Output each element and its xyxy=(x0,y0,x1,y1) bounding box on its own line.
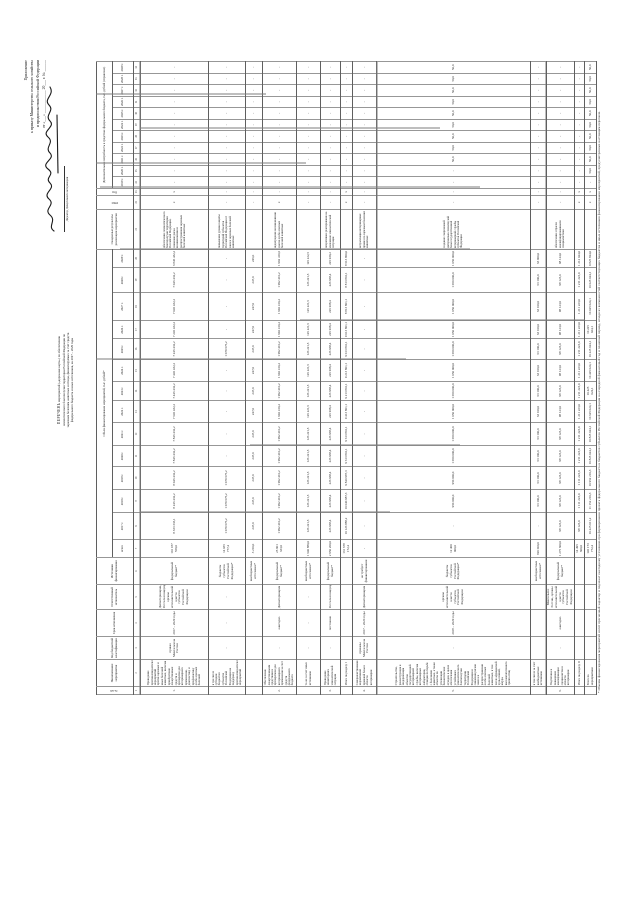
table-cell: 10 825 024,1 xyxy=(585,446,597,467)
table-cell: 10 952 210,3 xyxy=(585,467,597,490)
table-cell: 1 992 410,2 xyxy=(263,339,297,360)
table-cell: - xyxy=(321,165,341,176)
table-cell: - xyxy=(585,176,597,188)
table-cell: 50,0 xyxy=(585,119,597,130)
table-cell: - xyxy=(297,73,321,84)
table-cell: - xyxy=(209,61,246,73)
table-cell: 226 938,4 xyxy=(321,490,341,513)
table-cell: 1 992 410,2 xyxy=(263,490,297,513)
table-cell: 50,0 xyxy=(377,153,531,165)
table-cell: Строительство, реконструкция и модерниза… xyxy=(377,660,531,687)
table-cell: 7 246 432,2 xyxy=(141,321,209,339)
table-cell xyxy=(341,687,353,695)
table-cell: - xyxy=(321,153,341,165)
table-cell: 1 992 410,2 xyxy=(263,293,297,321)
table-cell: 226 938,4 xyxy=(321,360,341,382)
table-cell: х xyxy=(341,188,353,195)
table-cell: 1 992 410,2 xyxy=(263,321,297,339)
table-cell: 126 221,5 xyxy=(297,268,321,293)
table-cell: Депветеринария, Россельхознадзор, органы… xyxy=(141,585,209,610)
table-cell: - xyxy=(141,107,209,119)
table-cell: 247,0 xyxy=(246,360,263,382)
table-cell: - xyxy=(246,165,263,176)
table-cell: 126 221,5 xyxy=(297,513,321,540)
table-cell: - xyxy=(353,188,377,195)
table-cell: 10 425 024,1 xyxy=(585,360,597,382)
table-cell: 1 050 000,0 xyxy=(377,446,531,467)
table-cell: - xyxy=(547,153,575,165)
header-cell: 2025 г. xyxy=(113,339,134,360)
table-cell: 50,0 xyxy=(377,84,531,96)
table-cell: Депветеринария xyxy=(263,585,297,610)
table-cell: 950 000,0 xyxy=(377,467,531,490)
table-cell: - xyxy=(547,73,575,84)
header-cell: всего xyxy=(113,540,134,558)
header-cell: 2029 г. xyxy=(113,249,134,267)
table-cell: х xyxy=(585,188,597,195)
table-cell: - xyxy=(263,188,297,195)
table-cell: 226 938,4 xyxy=(321,339,341,360)
table-cell: - xyxy=(321,637,341,660)
table-cell: федеральный бюджет* xyxy=(263,558,297,585)
table-cell: 7 046 432,2 xyxy=(141,293,209,321)
table-cell: 226 938,4 xyxy=(321,513,341,540)
table-cell: 98 123,0 xyxy=(547,513,575,540)
table-cell: 8 613 800,0 xyxy=(341,249,353,267)
table-cell: 12 400 000,0 xyxy=(377,540,531,558)
page-title: ПЕРЕЧЕНЬ мероприятий («дорожная карта») … xyxy=(57,328,74,432)
table-cell: - xyxy=(263,61,297,73)
table-row: 5.Строительство, реконструкция и модерни… xyxy=(377,61,531,694)
main-table: № п/пНаименование мероприятияКод бюджетн… xyxy=(96,61,597,695)
table-cell: - xyxy=(341,142,353,153)
table-cell: - xyxy=(297,84,321,96)
table-row: 2.Обеспечение лекарственными средствами … xyxy=(263,61,297,694)
table-cell: 50,0 xyxy=(585,96,597,107)
table-cell: - xyxy=(341,61,353,73)
table-cell: 50,0 xyxy=(377,96,531,107)
scan-artifact xyxy=(300,319,585,321)
table-cell xyxy=(585,558,597,585)
table-cell: 1 212 024,0 xyxy=(575,249,585,267)
table-cell: федеральный бюджет* xyxy=(321,558,341,585)
table-cell: - xyxy=(353,321,377,339)
table-cell xyxy=(585,585,597,610)
table-cell: 247,0 xyxy=(246,423,263,446)
table-cell: 246,0 xyxy=(246,249,263,267)
table-cell: 9 013 801,1 xyxy=(341,339,353,360)
table-cell: 98 123,0 xyxy=(547,446,575,467)
table-cell: - xyxy=(321,142,341,153)
table-cell: - xyxy=(341,165,353,176)
scan-artifact xyxy=(120,248,470,250)
table-cell: 50,0 xyxy=(377,107,531,119)
table-cell: - xyxy=(547,195,575,209)
table-cell: органы исполнительной власти субъектов Р… xyxy=(377,585,531,610)
table-cell: - xyxy=(547,637,575,660)
table-cell: - xyxy=(575,73,585,84)
scanned-page: Приложение к приказу Министерства сельск… xyxy=(0,0,640,905)
table-cell: 1 111 223,0 xyxy=(575,490,585,513)
table-cell: - xyxy=(353,96,377,107)
header-cell: 2025 г. xyxy=(113,107,134,119)
table-cell: то же за счет иных источников xyxy=(297,660,321,687)
table-cell: 1. xyxy=(141,687,209,695)
table-cell: 1 211 223,0 xyxy=(575,360,585,382)
signature-line: ветеринарии xyxy=(66,177,69,192)
table-cell: 247,0 xyxy=(246,401,263,423)
table-cell: Депветеринария xyxy=(353,585,377,610)
table-cell: - xyxy=(321,73,341,84)
table-cell: 1 992 410,2 xyxy=(263,401,297,423)
table-cell: 9 013 801,1 xyxy=(341,321,353,339)
table-cell: - xyxy=(547,119,575,130)
table-cell xyxy=(246,610,263,637)
table-cell: 950 000,0 xyxy=(377,490,531,513)
table-cell: 247,0 xyxy=(246,490,263,513)
table-cell: 247,0 xyxy=(246,321,263,339)
table-cell: - xyxy=(263,165,297,176)
header-cell: 2022 г. xyxy=(113,401,134,423)
table-cell: 8 246 432,2 xyxy=(141,490,209,513)
header-cell: 2027 г. xyxy=(113,293,134,321)
header-cell: Наименование мероприятия xyxy=(97,660,134,687)
table-cell: 10 425 024,1 xyxy=(585,382,597,401)
table-cell: - xyxy=(353,446,377,467)
table-cell: 50,0 xyxy=(585,61,597,73)
table-cell: х xyxy=(575,188,585,195)
table-cell: 1 211 223,0 xyxy=(575,401,585,423)
header-cell: Источники финансирования xyxy=(97,558,134,585)
table-cell: 4. xyxy=(353,687,377,695)
table-cell: 2. xyxy=(263,687,297,695)
table-cell: Подготовка и повышение квалификации спец… xyxy=(547,660,575,687)
scan-artifact xyxy=(100,186,480,188)
table-cell: 131 678 172,4 xyxy=(341,540,353,558)
table-cell: 98 123,0 xyxy=(547,321,575,339)
table-cell: - xyxy=(209,382,246,401)
table-cell: 126 221,5 xyxy=(297,490,321,513)
table-cell: Итого по разделу II xyxy=(575,660,585,687)
table-cell: - xyxy=(341,153,353,165)
table-cell: 1 211 223,0 xyxy=(575,339,585,360)
table-cell: - xyxy=(263,130,297,142)
scan-artifact xyxy=(545,62,546,695)
table-cell xyxy=(575,209,585,249)
table-cell: повышение уровня защиты территорий субъе… xyxy=(209,209,246,249)
table-cell: - xyxy=(353,490,377,513)
table-cell: - xyxy=(297,142,321,153)
table-cell: Совершенствование нормативной правовой б… xyxy=(353,660,377,687)
table-cell: - xyxy=(341,130,353,142)
table-cell: - xyxy=(547,61,575,73)
table-row: в том числе субсидии бюджетам субъектов … xyxy=(209,61,246,694)
table-cell: 98 123,0 xyxy=(575,513,585,540)
table-cell: 126 222,5 xyxy=(297,249,321,267)
table-cell: оперативное реагирование на изменение эп… xyxy=(321,209,341,249)
table-cell: Проведение противоэпизоотических меропри… xyxy=(141,660,209,687)
table-cell: - xyxy=(209,73,246,84)
table-cell xyxy=(575,558,585,585)
table-cell: 2 950 200,0 xyxy=(321,540,341,558)
table-cell: - xyxy=(209,401,246,423)
table-cell: - xyxy=(246,188,263,195)
table-cell: 1 211 223,0 xyxy=(575,446,585,467)
table-cell: - xyxy=(209,130,246,142)
table-cell: - xyxy=(377,188,531,195)
table-cell: 226 938,4 xyxy=(321,467,341,490)
table-cell: 50,0 xyxy=(585,130,597,142)
table-cell: - xyxy=(353,467,377,490)
table-cell xyxy=(297,687,321,695)
header-cell: Код бюджетной классификации xyxy=(97,637,134,660)
table-cell: - xyxy=(297,96,321,107)
table-cell xyxy=(585,637,597,660)
table-row: 4.Совершенствование нормативной правовой… xyxy=(353,61,377,694)
table-cell: - xyxy=(341,84,353,96)
header-cell: 2023 г. xyxy=(113,130,134,142)
table-cell: 10 625 024,1 xyxy=(585,401,597,423)
main-table-host: № п/пНаименование мероприятияКод бюджетн… xyxy=(96,62,597,695)
table-cell: 1 211 223,0 xyxy=(575,382,585,401)
table-cell: 50,0 xyxy=(585,153,597,165)
table-cell: 1 992 410,2 xyxy=(263,360,297,382)
scan-artifact xyxy=(250,444,460,446)
header-cell: 2024 г. xyxy=(113,360,134,382)
table-cell: - xyxy=(209,446,246,467)
header-cell: 2026 г. xyxy=(113,96,134,107)
table-cell xyxy=(246,209,263,249)
table-cell: - xyxy=(209,195,246,209)
table-cell: - xyxy=(297,195,321,209)
header-cell: 2017 г. xyxy=(113,513,134,540)
table-cell: - xyxy=(246,195,263,209)
table-cell: Обеспечение лекарственными средствами и … xyxy=(263,660,297,687)
table-cell: 9 413 801,1 xyxy=(341,401,353,423)
table-cell: 1 640 880,0 xyxy=(297,540,321,558)
table-cell: - xyxy=(547,142,575,153)
table-cell: 11 152 210,3 xyxy=(585,490,597,513)
table-cell xyxy=(209,687,246,695)
header-cell: 2024 г. xyxy=(113,119,134,130)
table-cell: 1 275 600,0 xyxy=(547,540,575,558)
table-cell: 98 123,0 xyxy=(547,490,575,513)
table-cell xyxy=(585,610,597,637)
table-cell xyxy=(246,637,263,660)
table-row: 3.Проведение мониторинга эпизоотической … xyxy=(321,61,341,694)
table-cell: 98 123,0 xyxy=(547,360,575,382)
signature-block: Директор Департамента ветеринарии xyxy=(64,166,70,232)
header-cell: Ответственный исполнитель xyxy=(97,585,134,610)
scan-artifact xyxy=(139,62,141,695)
table-cell: - xyxy=(547,107,575,119)
table-cell: 1 050 000,0 xyxy=(377,321,531,339)
table-cell: 7 046 432,2 xyxy=(141,268,209,293)
table-cell: 1 211 223,0 xyxy=(575,268,585,293)
table-cell: 7 246 432,2 xyxy=(141,339,209,360)
table-cell: - xyxy=(341,73,353,84)
table-cell: не требует финансирования xyxy=(353,558,377,585)
table-cell: - xyxy=(209,188,246,195)
table-cell: - xyxy=(263,73,297,84)
table-cell: - xyxy=(547,84,575,96)
scan-artifact xyxy=(140,511,390,513)
table-cell: 98 123,0 xyxy=(547,401,575,423)
table-cell: - xyxy=(297,610,321,637)
header-cell: № п/п xyxy=(97,687,134,695)
table-cell: - xyxy=(353,195,377,209)
table-cell: 50,0 xyxy=(585,73,597,84)
table-cell: 98 123,0 xyxy=(547,467,575,490)
table-cell: в том числе субсидии бюджетам субъектов … xyxy=(209,660,246,687)
table-cell: федеральный бюджет* xyxy=(547,558,575,585)
header-cell: 2022 г. xyxy=(113,142,134,153)
table-cell: 1 079 675,2 xyxy=(209,490,246,513)
table-cell: 1 992 410,2 xyxy=(263,467,297,490)
table-cell: - xyxy=(321,195,341,209)
table-cell: 98 123,0 xyxy=(547,268,575,293)
table-cell: 226 938,4 xyxy=(321,382,341,401)
table-cell xyxy=(246,687,263,695)
table-cell: - xyxy=(353,142,377,153)
table-cell: 7 446 432,2 xyxy=(141,382,209,401)
table-cell: 9 213 801,1 xyxy=(341,360,353,382)
header-cell: 2028 г. xyxy=(113,268,134,293)
table-cell: - xyxy=(353,61,377,73)
table-cell xyxy=(341,610,353,637)
table-cell: - xyxy=(141,142,209,153)
table-cell: 10 025 024,1 xyxy=(585,293,597,321)
table-cell: 1 050 000,0 xyxy=(377,423,531,446)
table-cell: - xyxy=(246,107,263,119)
scan-artifact xyxy=(96,93,266,95)
table-cell: 1 992 410,2 xyxy=(263,446,297,467)
table-cell: - xyxy=(209,610,246,637)
title-line: ПЕРЕЧЕНЬ xyxy=(57,403,61,424)
table-cell xyxy=(575,610,585,637)
table-cell: 9 613 801,1 xyxy=(341,446,353,467)
table-cell: 1 050 000,0 xyxy=(377,382,531,401)
table-cell: - xyxy=(209,142,246,153)
table-cell: 1 992 410,2 xyxy=(263,423,297,446)
table-cell: 1 050 000,0 xyxy=(377,293,531,321)
table-cell: внебюджетные источники* xyxy=(297,558,321,585)
table-cell xyxy=(575,637,585,660)
table-cell: 126 221,5 xyxy=(297,321,321,339)
table-cell: - xyxy=(353,513,377,540)
table-cell: - xyxy=(263,84,297,96)
table-cell: - xyxy=(575,119,585,130)
table-cell: - xyxy=(321,188,341,195)
table-cell: 247,0 xyxy=(246,268,263,293)
table-cell: 98 123,0 xyxy=(547,293,575,321)
table-cell: 50,0 xyxy=(585,84,597,96)
table-cell: - xyxy=(297,637,321,660)
table-cell: - xyxy=(353,540,377,558)
table-cell: - xyxy=(297,107,321,119)
header-cell: 2021 г. xyxy=(113,423,134,446)
table-cell: х xyxy=(585,195,597,209)
table-cell: 1 050 000,0 xyxy=(377,249,531,267)
table-cell: - xyxy=(321,61,341,73)
table-cell: - xyxy=(377,165,531,176)
table-cell: - xyxy=(209,165,246,176)
table-cell: - xyxy=(141,165,209,176)
table-cell: 3 210,0 xyxy=(246,540,263,558)
table-row: Всего по мероприятиям146 173 772,410 225… xyxy=(585,61,597,694)
table-cell: - xyxy=(353,382,377,401)
table-cell: 1 079 675,2 xyxy=(209,339,246,360)
table-cell: - xyxy=(246,96,263,107)
table-cell: 10 025 024,1 xyxy=(585,268,597,293)
table-cell: 1 050 000,0 xyxy=(377,360,531,382)
table-cell: 8 046 432,2 xyxy=(141,467,209,490)
table-cell: - xyxy=(141,73,209,84)
header-cell: Код xyxy=(97,188,134,195)
table-cell xyxy=(341,209,353,249)
table-cell: - xyxy=(353,268,377,293)
table-cell: 9 825 824,0 xyxy=(585,249,597,267)
table-cell: обеспечение отрасли квалифицированными с… xyxy=(547,209,575,249)
table-row: то же за счет иных источников---внебюдже… xyxy=(297,61,321,694)
table-cell: 247,0 xyxy=(246,467,263,490)
table-cell: - xyxy=(575,130,585,142)
table-cell: - xyxy=(246,61,263,73)
table-cell: 226 938,4 xyxy=(321,268,341,293)
table-cell: х xyxy=(263,195,297,209)
table-cell: - xyxy=(297,585,321,610)
table-cell: - xyxy=(353,153,377,165)
table-cell: - xyxy=(575,142,585,153)
table-cell: - xyxy=(575,165,585,176)
table-cell xyxy=(297,209,321,249)
table-cell: 10 225 011,2 xyxy=(585,513,597,540)
table-cell: х xyxy=(141,195,209,209)
table-cell: 7 446 432,2 xyxy=(141,360,209,382)
table-cell: 50,0 xyxy=(585,165,597,176)
table-cell: 9 213 801,1 xyxy=(341,382,353,401)
handwritten-scribble xyxy=(44,83,60,233)
table-cell: - xyxy=(353,293,377,321)
table-cell: 50,0 xyxy=(377,61,531,73)
table-cell: - xyxy=(209,360,246,382)
header-cell: 2023 г. xyxy=(113,382,134,401)
table-cell: 98 123,0 xyxy=(547,423,575,446)
table-cell: - xyxy=(209,637,246,660)
table-cell: внебюджетные источники* xyxy=(246,558,263,585)
scan-artifact xyxy=(140,127,440,129)
table-cell: - xyxy=(575,84,585,96)
table-cell: - xyxy=(321,96,341,107)
header-cell: 2028 г. xyxy=(113,73,134,84)
table-cell: 126 221,5 xyxy=(297,339,321,360)
table-cell xyxy=(575,687,585,695)
table-cell: 126 221,5 xyxy=(297,401,321,423)
table-cell: - xyxy=(141,130,209,142)
table-cell: 126 221,5 xyxy=(297,293,321,321)
table-cell: - xyxy=(209,96,246,107)
table-cell: - xyxy=(353,339,377,360)
table-cell: 126 221,5 xyxy=(297,467,321,490)
table-cell: 1 211 223,0 xyxy=(575,321,585,339)
table-cell: 1 079 675,2 xyxy=(209,513,246,540)
table-cell: - xyxy=(575,107,585,119)
table-cell: - xyxy=(353,84,377,96)
scan-artifact xyxy=(376,62,378,695)
table-cell: 146 173 772,4 xyxy=(585,540,597,558)
table-cell: 8 813 801,1 xyxy=(341,268,353,293)
table-cell: - xyxy=(246,130,263,142)
